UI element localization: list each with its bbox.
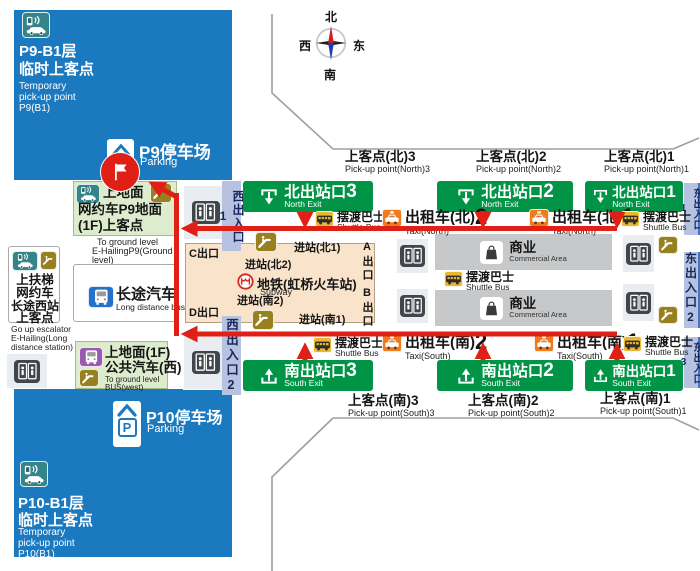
elevator-icon [626, 243, 651, 265]
west-pickup-en3: distance station) [11, 343, 73, 353]
pickup-north-3: 上客点(北)3 Pick-up point(North)3 [345, 150, 430, 174]
bus-west-l1: 上地面(1F) [105, 345, 170, 360]
west-entrance-2-strip: 西出入口2 [222, 316, 241, 395]
gate-north2-label: 进站(北2) [245, 256, 291, 272]
p9-title-en2: pick-up point [19, 92, 76, 103]
elevator-box [622, 283, 655, 322]
ehailing-p9-line3: (1F)上客点 [78, 218, 143, 233]
shuttle-bus-label-north-left: 摆渡巴士Shuttle Bus [315, 211, 385, 232]
commercial-label: 商业 [509, 297, 567, 311]
p10-title-en1: Temporary [18, 527, 65, 538]
compass-star-icon [312, 24, 350, 62]
compass-north-label: 北 [325, 8, 337, 25]
bus-west-en2: BUS(west) [105, 383, 143, 393]
elevator-box [396, 288, 429, 324]
p10-title-cn: P10-B1层 [18, 495, 84, 513]
p9-title-cn2: 临时上客点 [19, 61, 94, 79]
long-distance-bus-en: Long distance bus [116, 303, 185, 313]
ehailing-icon [12, 251, 38, 271]
p9-parking-label-en: Parking [140, 156, 177, 168]
city-bus-icon [79, 347, 103, 367]
taxi-south-2: 出租车(南)2 Taxi(South) [382, 334, 487, 361]
long-distance-bus-cn: 长途汽车 [116, 287, 176, 302]
exit-down-icon [456, 187, 476, 207]
ehailing-icon [22, 12, 50, 38]
south-exit-1: 南出站口1 South Exit [585, 360, 683, 391]
escalator-icon [255, 232, 277, 252]
chevron-up-icon [115, 403, 139, 417]
pickup-north-2: 上客点(北)2 Pick-up point(North)2 [476, 150, 561, 174]
ehailing-p9-line2: 网约车P9地面 [78, 202, 162, 217]
taxi-icon [382, 209, 402, 227]
taxi-icon [534, 334, 554, 352]
exit-up-icon [592, 367, 609, 384]
commercial-area-block: 商业 Commercial Area [435, 290, 612, 326]
exit-b-label: B出口 [359, 287, 375, 329]
exit-d-label: D出口 [189, 304, 219, 320]
bus-west-l2: 公共汽车(西) [105, 360, 182, 375]
taxi-icon [382, 334, 402, 352]
exit-a-label: A出口 [359, 241, 375, 283]
escalator-icon [658, 236, 678, 254]
taxi-icon [529, 209, 549, 227]
compass-south-label: 南 [324, 66, 336, 83]
ehailing-icon [20, 461, 48, 487]
exit-up-icon [456, 366, 476, 386]
elevator-icon [400, 295, 425, 317]
west-pickup-box: 上扶梯 网约车 长途西站 上客点 [8, 246, 60, 323]
shopping-bag-icon [480, 241, 503, 264]
taxi-north-2: 出租车(北)2 Taxi(North) [382, 209, 487, 236]
shuttle-bus-label-north-right: 摆渡巴士Shuttle Bus [621, 211, 691, 232]
shuttle-bus-icon [315, 211, 334, 227]
parking-p-icon: P [118, 418, 137, 437]
metro-logo-icon [237, 273, 254, 290]
pickup-south-2: 上客点(南)2 Pick-up point(South)2 [468, 394, 555, 418]
commercial-area-block: 商业 Commercial Area [435, 234, 612, 270]
east-entrance-2-strip: 东出入口2 [684, 252, 700, 328]
exit-down-icon [592, 188, 609, 205]
elevator-icon [626, 292, 651, 314]
elevator-box [622, 234, 655, 273]
gate-south2-label: 进站(南2) [237, 292, 283, 308]
north-exit-3: 北出站口3 North Exit [243, 181, 373, 212]
elevator-box [396, 238, 429, 274]
escalator-icon [658, 306, 678, 324]
elevator-icon [192, 351, 220, 374]
gate-south1-label: 进站(南1) [299, 311, 345, 327]
south-exit-3: 南出站口3 South Exit [243, 360, 373, 391]
p10-parking-label-en: Parking [147, 423, 184, 435]
exit-down-icon [259, 187, 279, 207]
escalator-icon [79, 369, 99, 387]
elevator-box [6, 353, 48, 389]
p9-title-en1: Temporary [19, 81, 66, 92]
commercial-label: 商业 [509, 241, 567, 255]
shuttle-bus-icon [313, 337, 332, 353]
pickup-destination-marker [100, 152, 140, 192]
p9-title-cn: P9-B1层 [19, 43, 77, 61]
p10-title-en2: pick-up point [18, 538, 75, 549]
elevator-icon [400, 245, 425, 267]
shuttle-bus-icon [444, 271, 463, 287]
escalator-icon [252, 310, 274, 330]
escalator-icon [40, 251, 57, 270]
taxi-north-1: 出租车(北)1 Taxi(North) [529, 209, 634, 236]
station-map: P9-B1层 临时上客点 Temporary pick-up point P9(… [0, 0, 700, 571]
shuttle-bus-label-south-left: 摆渡巴士Shuttle Bus [313, 337, 383, 358]
shuttle-bus-label-south-right: 摆渡巴士Shuttle Bus [623, 336, 693, 357]
p9-title-en3: P9(B1) [19, 103, 50, 114]
gate-north1-label: 进站(北1) [294, 239, 340, 255]
north-exit-2: 北出站口2 North Exit [437, 181, 573, 212]
south-exit-2: 南出站口2 South Exit [437, 360, 573, 391]
compass: 北 西 东 南 [297, 10, 365, 82]
ehailing-icon [76, 184, 100, 204]
long-distance-bus-box: 长途汽车 Long distance bus [73, 264, 177, 322]
compass-west-label: 西 [299, 37, 311, 54]
p10-title-en3: P10(B1) [18, 549, 55, 560]
shuttle-bus-icon [621, 211, 640, 227]
long-distance-bus-icon [88, 286, 114, 308]
exit-up-icon [259, 366, 279, 386]
flag-icon [108, 159, 132, 185]
commercial-label-en: Commercial Area [509, 255, 567, 263]
compass-east-label: 东 [353, 37, 365, 54]
p10-parking-sign: P [113, 401, 141, 447]
shuttle-bus-label-mid: 摆渡巴士Shuttle Bus [444, 271, 514, 292]
pickup-south-3: 上客点(南)3 Pick-up point(South)3 [348, 394, 435, 418]
exit-c-label: C出口 [189, 245, 219, 261]
escalator-icon [150, 183, 172, 203]
commercial-label-en: Commercial Area [509, 311, 567, 319]
bus-west-box: 上地面(1F) 公共汽车(西) To ground level BUS(west… [75, 341, 168, 389]
shuttle-bus-icon [623, 336, 642, 352]
pickup-south-1: 上客点(南)1 Pick-up point(South)1 [600, 392, 687, 416]
shopping-bag-icon [480, 297, 503, 320]
pickup-north-1: 上客点(北)1 Pick-up point(North)1 [604, 150, 689, 174]
west-entrance-1-strip: 西出入口1 [222, 181, 241, 251]
elevator-icon [14, 360, 40, 383]
